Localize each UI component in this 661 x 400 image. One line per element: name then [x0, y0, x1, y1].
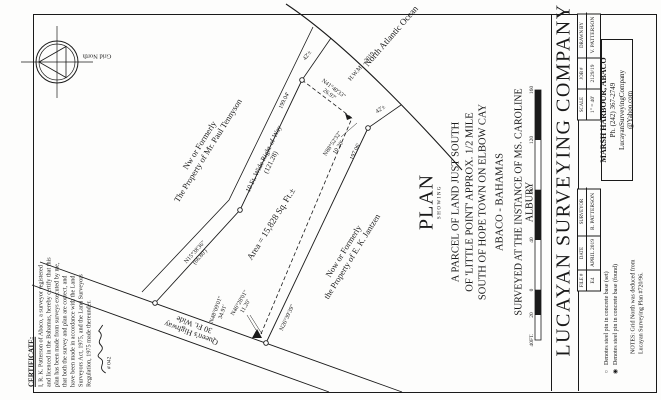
notes-line-1: NOTES: Grid North was deduced from	[630, 236, 638, 354]
right-of-way-line	[142, 27, 313, 292]
description-line-1: A PARCEL OF LAND JUST SOUTH	[450, 104, 464, 300]
company-address-box: MARSH HARBOUR, ABACO Ph. (242) 367-2749 …	[601, 39, 633, 181]
notes-block: NOTES: Grid North was deduced from Lucay…	[630, 236, 647, 354]
plan-showing: SHOWING	[438, 185, 443, 219]
field-scale: SCALE 1" = 40'	[578, 90, 600, 120]
legend-row-set: ○ Denotes steel pin in concrete base (se…	[603, 225, 612, 375]
certificate-line: I, R. K. Patterson of Abaco, a surveyor …	[38, 209, 46, 387]
plan-location: ABACO - BAHAMAS	[494, 153, 505, 251]
survey-plan-scan: { "compass": { "label": "Grid North" }, …	[0, 0, 661, 400]
certificate-heading: CERTIFICATE:	[28, 209, 36, 387]
field-value: 2129/19	[587, 59, 599, 89]
certificate-block: CERTIFICATE: I, R. K. Patterson of Abaco…	[28, 209, 113, 387]
license-number: # 042	[106, 209, 112, 369]
legend: ○ Denotes steel pin in concrete base (se…	[603, 225, 621, 375]
titleblock-grid-lower: FILE # E4 DATE APRIL 2019 SURVEYOR R. PA…	[577, 189, 601, 292]
field-value: V. PATTERSON	[587, 13, 599, 58]
company-name: LUCAYAN SURVEYING COMPANY	[553, 3, 576, 356]
plan-description: A PARCEL OF LAND JUST SOUTH OF 'LITTLE P…	[450, 104, 491, 300]
company-address-city: MARSH HARBOUR, ABACO	[599, 57, 609, 162]
pin-found-icon: ◉	[612, 368, 621, 375]
scale-tick-label: 120	[529, 136, 535, 145]
certificate-line: plan has been made from surveys executed…	[54, 209, 62, 387]
grid-north-label: Grid North	[83, 52, 112, 59]
description-line-3: SOUTH OF HOPE TOWN ON ELBOW CAY	[477, 104, 491, 300]
scale-bar: 40FT. 20 0 40 80 120 160	[526, 80, 546, 356]
field-label: DRAWN BY	[578, 13, 587, 58]
legend-row-found: ◉ Denotes steel pin in concrete base (fo…	[612, 225, 621, 375]
scale-bar-segment	[535, 290, 541, 315]
field-label: FILE #	[578, 271, 587, 291]
certificate-line: Regulation, 1975 made thereunder.	[85, 209, 93, 387]
titleblock-grid-upper: SCALE 1" = 40' JOB # 2129/19 DRAWN BY V.…	[577, 14, 601, 121]
plan-sheet: North Atlantic Ocean H.W.M. - 2019 Nw or…	[0, 0, 661, 400]
field-label: SURVEYOR	[578, 188, 587, 236]
legend-text: Denotes steel pin in concrete base (foun…	[612, 264, 621, 365]
signature-stroke	[98, 325, 106, 373]
scale-tick-label: 0	[529, 288, 535, 291]
certificate-line: Surveyors Act, 1975, and the Land Survey…	[77, 209, 85, 387]
field-label: SCALE	[578, 90, 587, 120]
field-file-number: FILE # E4	[578, 271, 600, 291]
certificate-line: have been made in accordance with the La…	[69, 209, 77, 387]
field-value: 1" = 40'	[587, 90, 599, 120]
company-email-2: @Yahoo.com	[626, 91, 635, 129]
plan-title-block: PLAN SHOWING A PARCEL OF LAND JUST SOUTH…	[417, 72, 536, 332]
field-label: DATE	[578, 237, 587, 270]
pin-shore-se	[366, 126, 371, 131]
field-value: E4	[587, 271, 599, 291]
field-label: JOB #	[578, 59, 587, 89]
field-job-number: JOB # 2129/19	[578, 59, 600, 90]
scale-tick-label: 20	[529, 312, 535, 318]
description-line-2: OF 'LITTLE POINT' APPROX. 1/2 MILE	[463, 104, 477, 300]
pin-mid-nw	[238, 208, 243, 213]
scale-tick-label: 40	[529, 237, 535, 243]
scale-bar-segment	[535, 90, 541, 140]
pin-set-icon: ○	[603, 368, 612, 375]
scale-tick-label: 160	[529, 86, 535, 95]
certificate-line: and licenced in the Bahamas, hereby cert…	[46, 209, 54, 387]
pin-shore-nw	[300, 78, 305, 83]
field-surveyor: SURVEYOR R. PATTERSON	[578, 188, 600, 237]
scale-bar-segment	[535, 190, 541, 240]
plan-title: PLAN	[417, 174, 437, 230]
field-value: APRIL 2019	[587, 237, 599, 270]
scale-tick-label: 80	[529, 187, 535, 193]
certificate-line: that both the survey and plan are correc…	[62, 209, 70, 387]
field-date: DATE APRIL 2019	[578, 237, 600, 271]
field-drawn-by: DRAWN BY V. PATTERSON	[578, 13, 600, 59]
pin-road-nw	[153, 301, 158, 306]
notes-line-2: Lucayan Surveying Plan #720/96.	[638, 236, 646, 354]
tie-arrowhead	[345, 113, 352, 120]
pin-road-se	[264, 341, 269, 346]
field-value: R. PATTERSON	[587, 188, 599, 236]
legend-text: Denotes steel pin in concrete base (set)	[603, 271, 612, 365]
scale-tick-label: 40FT.	[529, 333, 535, 347]
found-pin-triangle	[252, 329, 262, 338]
company-email-1: LucayanSurveyingCompany	[618, 70, 627, 150]
company-phone: Ph. (242) 367-2749	[609, 83, 618, 138]
